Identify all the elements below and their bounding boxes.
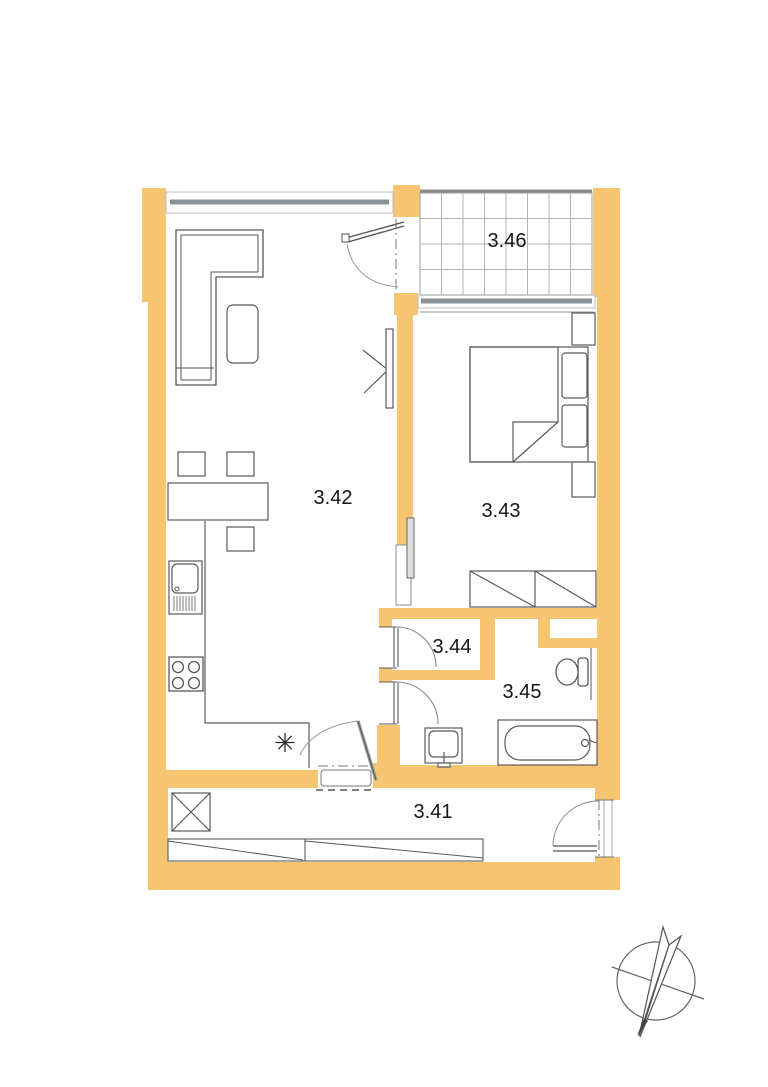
bed: [470, 347, 588, 462]
washbasin: [425, 728, 462, 767]
stove: [169, 657, 203, 691]
dining-table-set: [168, 452, 268, 551]
room-label-hall: 3.41: [402, 801, 464, 823]
apartment-floor-plan: 3.46 3.42 3.43 3.44 3.45 3.41 ✳: [0, 0, 768, 1087]
room-label-bathroom: 3.45: [491, 681, 553, 703]
entrance-door: [553, 800, 614, 857]
wardrobe-bedroom: [470, 571, 596, 607]
balcony-door: [342, 219, 404, 291]
sliding-door-bedroom: [396, 518, 414, 605]
dining-chair: [227, 452, 254, 476]
plan-linework: [0, 0, 768, 1087]
north-arrow-icon: [612, 927, 704, 1037]
room-label-living: 3.42: [302, 487, 364, 509]
shaft-box: [172, 793, 210, 831]
bathtub: [498, 720, 597, 765]
nightstand: [572, 313, 595, 345]
appliance-star-icon: ✳: [270, 727, 300, 759]
dining-chair: [178, 452, 205, 476]
tv: [363, 329, 393, 408]
room-label-storage: 3.44: [421, 636, 483, 658]
dining-table: [168, 483, 268, 520]
interior-door-living-hall: [300, 721, 376, 790]
toilet: [556, 648, 591, 700]
nightstand: [572, 462, 595, 497]
dining-chair: [227, 527, 254, 551]
pillow: [562, 405, 587, 447]
door-bathroom: [379, 682, 438, 724]
wardrobe-hall: [168, 839, 483, 861]
kitchen-sink: [169, 561, 202, 614]
living-room-window: [166, 192, 393, 213]
coffee-table: [227, 305, 258, 363]
pillow: [562, 353, 587, 398]
room-label-bedroom: 3.43: [470, 500, 532, 522]
bedroom-window: [418, 295, 595, 312]
room-label-balcony: 3.46: [476, 230, 538, 252]
